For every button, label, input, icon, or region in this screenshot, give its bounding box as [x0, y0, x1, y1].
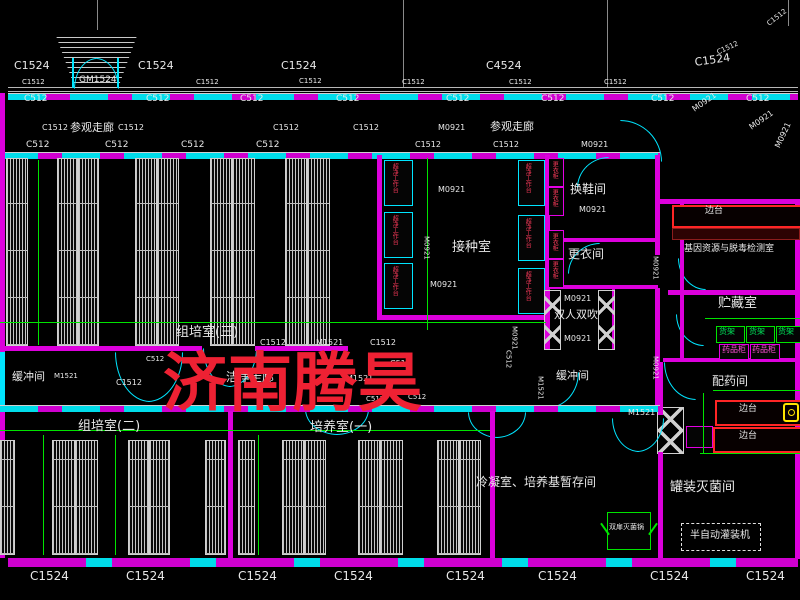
culture-rack — [6, 158, 28, 346]
culture-rack — [149, 440, 170, 555]
window-left — [0, 352, 5, 406]
equipment-label: 货架 — [749, 328, 765, 336]
equipment-label: 半自动灌装机 — [690, 531, 750, 542]
window-tag: C1524 — [138, 60, 174, 72]
clean-bench — [384, 263, 413, 309]
wall-vertical — [228, 411, 233, 558]
window-tag: C1512 — [509, 79, 532, 86]
window-tag: C1512 — [196, 79, 219, 86]
wall-vertical — [680, 295, 684, 358]
room-label: 换鞋间 — [570, 183, 606, 196]
culture-rack — [0, 440, 15, 555]
window-tag: C1512 — [493, 141, 519, 149]
door-tag: M0921 — [774, 121, 793, 149]
door-tag: M0921 — [510, 326, 517, 350]
window-tag: C512 — [504, 350, 511, 368]
dimension-line-green — [705, 318, 800, 319]
door-arc — [612, 418, 639, 452]
equipment-label: 超净工作台 — [391, 266, 397, 296]
door-arc — [496, 412, 526, 438]
culture-rack — [128, 440, 149, 555]
equipment-label: 双扉灭菌锅 — [609, 524, 644, 531]
room-label: 组培室(二) — [78, 420, 140, 434]
culture-rack — [52, 440, 75, 555]
door-tag: M1521 — [628, 409, 655, 417]
cabinet-box — [686, 426, 713, 448]
grid-line — [607, 0, 608, 88]
window-tag: C1512 — [299, 78, 322, 85]
dimension-line-green — [258, 435, 259, 555]
window-tag: C4524 — [486, 60, 522, 72]
window-tag: C1512 — [118, 124, 144, 132]
room-label: 基因资源与脱毒检测室 — [684, 245, 774, 254]
door-tag: M1521 — [536, 376, 543, 400]
room-label: 缓冲间 — [12, 371, 45, 383]
culture-rack — [135, 158, 157, 346]
window-tag: C1524 — [238, 570, 277, 583]
room-label: 接种室 — [452, 241, 491, 255]
culture-rack — [57, 158, 78, 346]
door-tag: M1521 — [54, 373, 78, 380]
cad-drawing-canvas: C1524C1524C1524C4524C1524C1512C1512GM152… — [0, 0, 800, 600]
room-label: 参观走廊 — [490, 121, 534, 133]
window-tag: C1512 — [604, 79, 627, 86]
window-tag: C512 — [24, 95, 47, 104]
culture-rack — [157, 158, 179, 346]
room-label: 更衣间 — [568, 248, 604, 261]
window-tag: C1524 — [650, 570, 689, 583]
window-tag: C512 — [651, 95, 674, 104]
wall-vertical — [377, 155, 382, 320]
culture-rack — [285, 158, 307, 346]
window-tag: C512 — [146, 95, 169, 104]
equipment-label: 货架 — [778, 328, 794, 336]
culture-rack — [307, 158, 330, 346]
window-tag: C1524 — [446, 570, 485, 583]
side-bench — [672, 205, 800, 228]
equipment-label: 货架 — [719, 328, 735, 336]
equipment-label: 超净工作台 — [524, 218, 530, 248]
equipment-label: 边台 — [739, 405, 757, 414]
room-label: 缓冲间 — [556, 370, 589, 382]
window-tag: C1512 — [402, 79, 425, 86]
dimension-line-green — [0, 322, 546, 323]
door-tag: M0921 — [581, 141, 608, 149]
window-tag: C1512 — [766, 8, 788, 28]
outer-wall-bottom — [8, 558, 798, 567]
grid-line — [97, 0, 98, 30]
door-arc — [620, 120, 662, 162]
wall-horizontal — [550, 285, 658, 289]
room-label: 贮藏室 — [718, 297, 757, 311]
outer-wall-line — [8, 91, 798, 92]
air-shower-unit — [598, 290, 615, 350]
window-tag: C512 — [446, 95, 469, 104]
wall-horizontal — [668, 290, 800, 295]
door-tag: M0921 — [564, 295, 591, 303]
window-tag: C512 — [256, 141, 279, 150]
room-label: 参观走廊 — [70, 122, 114, 134]
culture-rack — [75, 440, 98, 555]
room-label: 罐装灭菌间 — [670, 481, 735, 495]
wall-horizontal — [550, 238, 658, 242]
culture-rack — [205, 440, 226, 555]
sink-symbol — [783, 403, 799, 422]
window-tag: C512 — [146, 356, 164, 363]
dimension-line-green — [0, 430, 490, 431]
culture-rack — [459, 440, 481, 555]
dimension-line-green — [115, 435, 116, 555]
door-tag: M0921 — [651, 356, 658, 380]
wall-right — [795, 199, 800, 559]
clean-bench — [518, 215, 545, 261]
window-tag: C512 — [181, 141, 204, 150]
window-tag: C1524 — [30, 570, 69, 583]
watermark: 济南腾昊 — [163, 332, 423, 424]
window-tag: C1524 — [334, 570, 373, 583]
wall-vertical — [658, 452, 663, 558]
window-tag: C1524 — [14, 60, 50, 72]
window-tag: C1524 — [538, 570, 577, 583]
window-tag: C512 — [746, 95, 769, 104]
culture-rack — [437, 440, 459, 555]
dimension-line-green — [43, 435, 44, 555]
equipment-label: 超净工作台 — [524, 163, 530, 193]
outer-wall-line — [8, 87, 798, 88]
door-arc — [115, 352, 150, 402]
equipment-label: 边台 — [739, 432, 757, 441]
culture-rack — [232, 158, 255, 346]
window-tag: C1512 — [353, 124, 379, 132]
window-tag: C512 — [336, 95, 359, 104]
window-tag: C512 — [541, 95, 564, 104]
dimension-line-green — [700, 453, 800, 454]
window-tag: C1524 — [281, 60, 317, 72]
dimension-line-green — [713, 390, 800, 391]
dimension-line-green — [703, 393, 704, 453]
door-arc — [664, 362, 696, 400]
window-tag: C512 — [26, 141, 49, 150]
door-tag: M0921 — [438, 186, 465, 194]
room-label: 配药间 — [712, 375, 748, 388]
window-tag: C512 — [105, 141, 128, 150]
window-tag: C1524 — [746, 570, 785, 583]
culture-rack — [238, 440, 255, 555]
equipment-label: 超净工作台 — [391, 163, 397, 193]
equipment-label: 药品柜 — [752, 346, 776, 354]
wall-vertical — [655, 155, 660, 255]
culture-rack — [78, 158, 99, 346]
clean-bench — [518, 268, 545, 314]
equipment-label: 更衣柜 — [551, 189, 557, 207]
door-tag: M0921 — [430, 281, 457, 289]
bench-bar — [672, 228, 800, 240]
equipment-label: 更衣柜 — [551, 261, 557, 279]
window-band-top — [8, 93, 798, 100]
door-tag: M0921 — [651, 256, 658, 280]
window-tag: C1512 — [116, 379, 142, 387]
door-tag: M0921 — [579, 206, 606, 214]
equipment-label: 超净工作台 — [524, 271, 530, 301]
room-label: 冷凝室、培养基暂存间 — [476, 476, 596, 489]
clean-bench — [384, 212, 413, 258]
window-tag: C1512 — [22, 79, 45, 86]
clean-bench — [518, 160, 545, 206]
window-tag: C1524 — [694, 52, 731, 68]
room-label: 双人双吹 — [554, 309, 598, 321]
door-tag: M0921 — [438, 124, 465, 132]
equipment-label: 更衣柜 — [551, 233, 557, 251]
window-tag: C512 — [240, 95, 263, 104]
culture-rack — [210, 158, 232, 346]
door-tag: M0921 — [422, 236, 429, 260]
equipment-label: 超净工作台 — [391, 215, 397, 245]
equipment-label: 更衣柜 — [551, 161, 557, 179]
door-tag: M0921 — [748, 109, 775, 132]
window-tag: C1524 — [126, 570, 165, 583]
window-tag: C1512 — [273, 124, 299, 132]
door-tag: GM1524 — [79, 76, 117, 85]
equipment-label: 药品柜 — [722, 346, 746, 354]
window-tag: C1512 — [42, 124, 68, 132]
wall-horizontal — [377, 315, 550, 320]
equipment-label: 边台 — [705, 207, 723, 216]
dimension-line-green — [38, 160, 39, 345]
culture-rack — [380, 440, 403, 555]
clean-bench — [384, 160, 413, 206]
window-tag: C1512 — [415, 141, 441, 149]
culture-rack — [358, 440, 380, 555]
grid-line — [403, 0, 404, 88]
culture-rack — [304, 440, 326, 555]
door-tag: M0921 — [564, 335, 591, 343]
culture-rack — [282, 440, 304, 555]
